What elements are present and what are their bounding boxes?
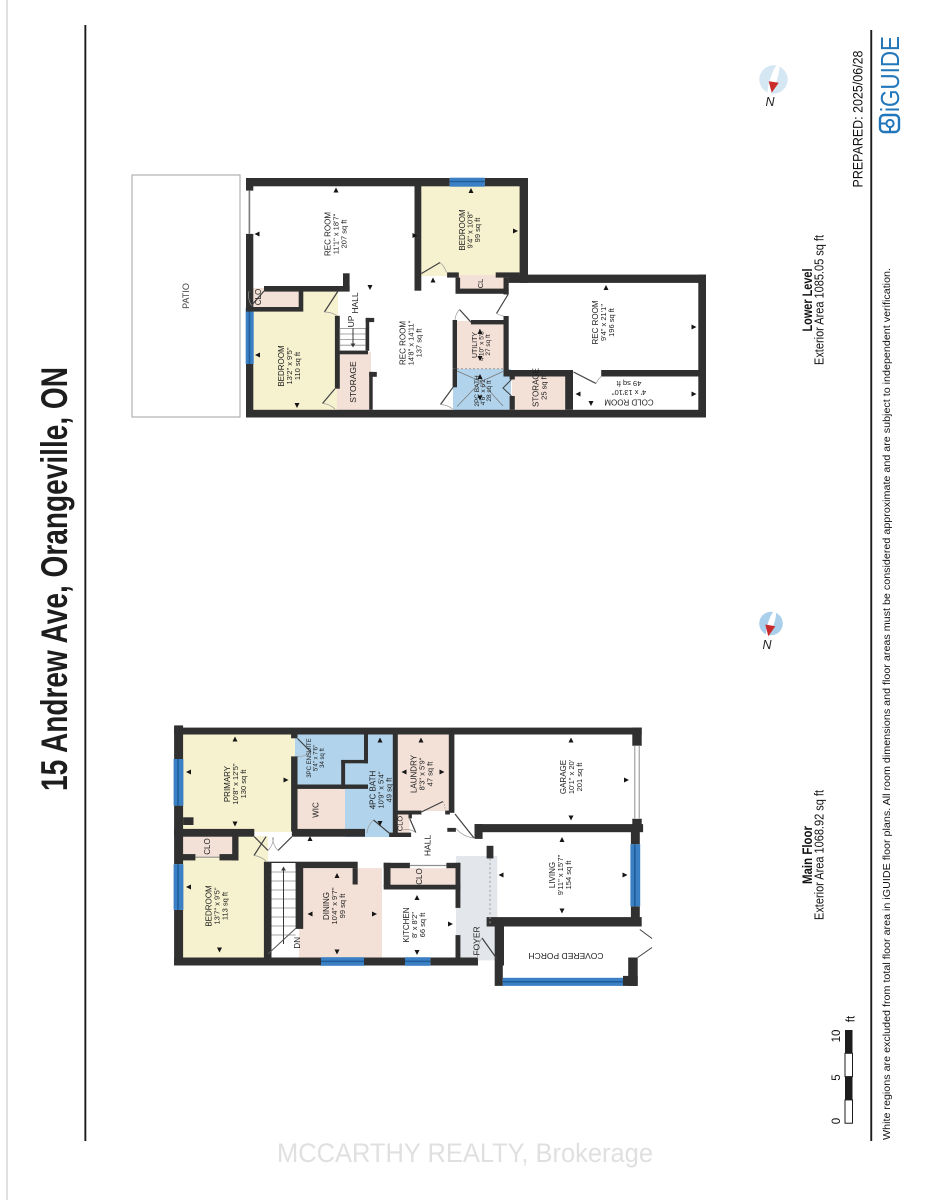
svg-text:Exterior Area 1068.92 sq ft: Exterior Area 1068.92 sq ft <box>812 790 827 920</box>
svg-text:25 sq ft: 25 sq ft <box>540 374 549 400</box>
svg-text:ft: ft <box>846 1015 858 1022</box>
svg-text:White regions are excluded fro: White regions are excluded from total fl… <box>881 268 893 1140</box>
svg-text:MCCARTHY REALTY, Brokerage: MCCARTHY REALTY, Brokerage <box>277 1138 653 1168</box>
svg-text:PATIO: PATIO <box>181 283 191 309</box>
svg-text:3PC ENSUITE: 3PC ENSUITE <box>307 738 313 777</box>
svg-text:130 sq ft: 130 sq ft <box>239 769 248 799</box>
svg-text:CLO: CLO <box>254 289 263 305</box>
svg-text:HALL: HALL <box>423 835 433 857</box>
svg-text:28 sq ft: 28 sq ft <box>486 380 493 402</box>
svg-text:5'4" x 7'6": 5'4" x 7'6" <box>314 745 320 771</box>
svg-text:PREPARED: 2025/06/28: PREPARED: 2025/06/28 <box>850 50 866 187</box>
svg-text:207 sq ft: 207 sq ft <box>340 219 349 249</box>
svg-text:iGUIDE: iGUIDE <box>875 36 905 112</box>
svg-text:137 sq ft: 137 sq ft <box>415 328 424 358</box>
svg-text:STORAGE: STORAGE <box>348 361 358 403</box>
svg-text:49 sq ft: 49 sq ft <box>616 379 642 388</box>
svg-text:CLO: CLO <box>396 816 405 832</box>
svg-text:HALL: HALL <box>350 292 360 314</box>
svg-text:5: 5 <box>831 1074 843 1080</box>
svg-text:UP: UP <box>346 315 356 327</box>
svg-text:N: N <box>762 638 772 652</box>
svg-text:113 sq ft: 113 sq ft <box>221 891 230 920</box>
svg-text:49 sq ft: 49 sq ft <box>385 777 394 803</box>
svg-text:CL: CL <box>476 279 485 289</box>
svg-text:34 sq ft: 34 sq ft <box>320 748 326 768</box>
svg-text:10: 10 <box>831 1030 843 1043</box>
svg-text:CLO: CLO <box>203 838 212 854</box>
svg-text:27 sq ft: 27 sq ft <box>485 334 492 356</box>
svg-text:FOYER: FOYER <box>472 926 482 955</box>
svg-text:DN: DN <box>293 937 302 949</box>
svg-text:66 sq ft: 66 sq ft <box>418 912 427 938</box>
svg-text:99 sq ft: 99 sq ft <box>338 893 347 919</box>
svg-text:CLO: CLO <box>415 868 424 884</box>
svg-text:WIC: WIC <box>312 802 321 818</box>
svg-text:COVERED PORCH: COVERED PORCH <box>528 951 603 961</box>
svg-text:0: 0 <box>831 1118 843 1124</box>
svg-text:4' x 13'10": 4' x 13'10" <box>612 388 647 397</box>
svg-text:15 Andrew Ave, Orangeville, ON: 15 Andrew Ave, Orangeville, ON <box>34 367 75 791</box>
svg-text:47 sq ft: 47 sq ft <box>426 761 435 787</box>
svg-text:Exterior Area 1085.05 sq ft: Exterior Area 1085.05 sq ft <box>812 235 827 365</box>
svg-text:99 sq ft: 99 sq ft <box>473 217 482 243</box>
svg-text:196 sq ft: 196 sq ft <box>607 307 616 337</box>
svg-text:COLD ROOM: COLD ROOM <box>604 398 654 407</box>
svg-text:110 sq ft: 110 sq ft <box>293 351 302 380</box>
svg-text:154 sq ft: 154 sq ft <box>564 860 573 890</box>
svg-text:N: N <box>765 95 775 109</box>
svg-text:201 sq ft: 201 sq ft <box>575 762 584 792</box>
